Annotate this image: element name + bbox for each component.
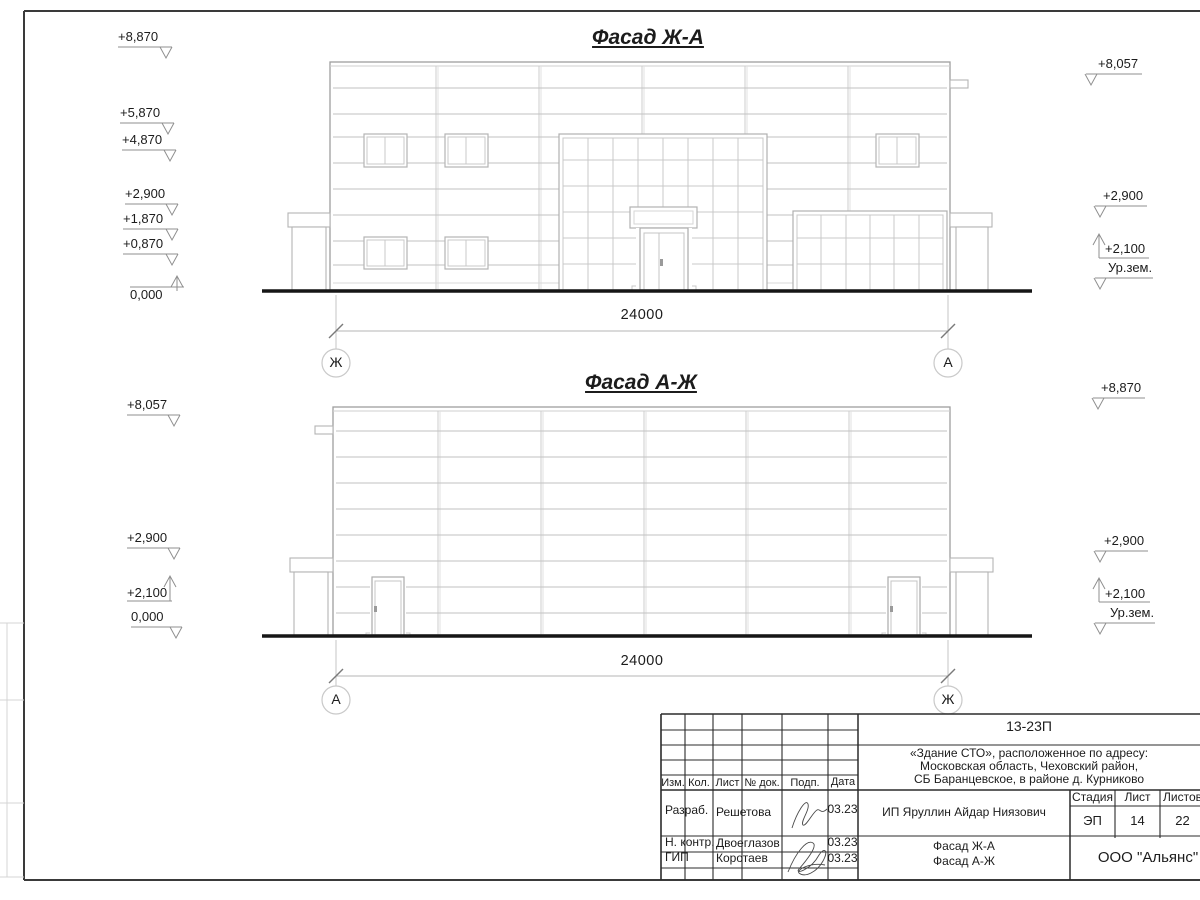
elevation-mark: +8,870 (1101, 381, 1141, 395)
titleblock-col-data: Дата (828, 776, 858, 788)
elevation-mark: +0,870 (123, 237, 163, 251)
elevation-mark: +5,870 (120, 106, 160, 120)
titleblock-sheet-value: 14 (1115, 814, 1160, 828)
facade-top-title: Фасад Ж-А (558, 26, 738, 49)
elevation-mark: +2,100 (1105, 587, 1145, 601)
entrance-sign-box (630, 207, 697, 228)
facade-top-drawing (262, 62, 1032, 377)
titleblock-col-izm: Изм. (661, 777, 685, 789)
titleblock-col-podp: Подп. (782, 777, 828, 789)
titleblock-name: Решетова (716, 806, 771, 819)
elevation-mark: 0,000 (131, 610, 164, 624)
curtain-wall (559, 134, 767, 292)
titleblock-sheets-label: Листов (1160, 791, 1200, 804)
titleblock-name: Двоеглазов (716, 837, 780, 850)
elevation-mark: +1,870 (123, 212, 163, 226)
dimension-label-top: 24000 (582, 308, 702, 324)
elevation-mark: +2,900 (1103, 189, 1143, 203)
titleblock-sheet-title-line: Фасад Ж-А (858, 840, 1070, 853)
elevation-mark: +8,057 (127, 398, 167, 412)
glazed-band (793, 211, 947, 290)
elevation-mark: 0,000 (130, 288, 163, 302)
elevation-mark: +8,870 (118, 30, 158, 44)
elevation-mark: Ур.зем. (1110, 606, 1154, 620)
titleblock-col-ndok: № док. (742, 777, 782, 789)
signatures (788, 803, 827, 875)
titleblock-client: ИП Яруллин Айдар Ниязович (858, 806, 1070, 819)
drawing-sheet: Фасад Ж-А Фасад А-Ж +8,870 +5,870 +4,870… (0, 0, 1200, 900)
elevation-mark: +2,100 (1105, 242, 1145, 256)
axis-bubble-bottom-left: А (316, 692, 356, 707)
titleblock-stage-value: ЭП (1070, 814, 1115, 828)
elevation-mark: +4,870 (122, 133, 162, 147)
dimension-label-bottom: 24000 (582, 654, 702, 670)
titleblock-role: Разраб. (665, 804, 708, 817)
elevation-mark: +2,900 (1104, 534, 1144, 548)
axis-bubble-top-right: А (928, 355, 968, 370)
elevation-mark: +2,900 (125, 187, 165, 201)
elevation-mark: +8,057 (1098, 57, 1138, 71)
axis-bubble-top-left: Ж (316, 355, 356, 370)
titleblock-address-line: СБ Баранцевское, в районе д. Курниково (858, 773, 1200, 786)
door-right (882, 575, 926, 637)
titleblock-col-list: Лист (713, 777, 742, 789)
titleblock-date: 03.23 (827, 836, 858, 849)
titleblock-date: 03.23 (827, 852, 858, 865)
door-left (366, 575, 410, 637)
dimension-bottom (322, 640, 962, 714)
roof-stub-left (315, 426, 333, 434)
facade-bottom-title: Фасад А-Ж (551, 371, 731, 394)
axis-bubble-bottom-right: Ж (928, 692, 968, 707)
roof-stub (950, 80, 968, 88)
titleblock-date: 03.23 (827, 803, 858, 816)
elevation-mark: +2,100 (127, 586, 167, 600)
titleblock-sheet-label: Лист (1115, 791, 1160, 804)
elevation-mark: +2,900 (127, 531, 167, 545)
titleblock-role: ГИП (665, 851, 689, 864)
margin-boxes (0, 623, 24, 877)
elevation-mark: Ур.зем. (1108, 261, 1152, 275)
titleblock-col-kol: Кол. (685, 777, 713, 789)
titleblock-organization: ООО "Альянс" (1072, 850, 1200, 867)
titleblock-sheets-value: 22 (1160, 814, 1200, 828)
titleblock-name: Коротаев (716, 852, 768, 865)
titleblock-doc-number: 13-23П (858, 719, 1200, 734)
titleblock-role: Н. контр. (665, 836, 715, 849)
titleblock-stage-label: Стадия (1070, 791, 1115, 804)
titleblock-sheet-title-line: Фасад А-Ж (858, 855, 1070, 868)
entrance-door (636, 228, 692, 290)
